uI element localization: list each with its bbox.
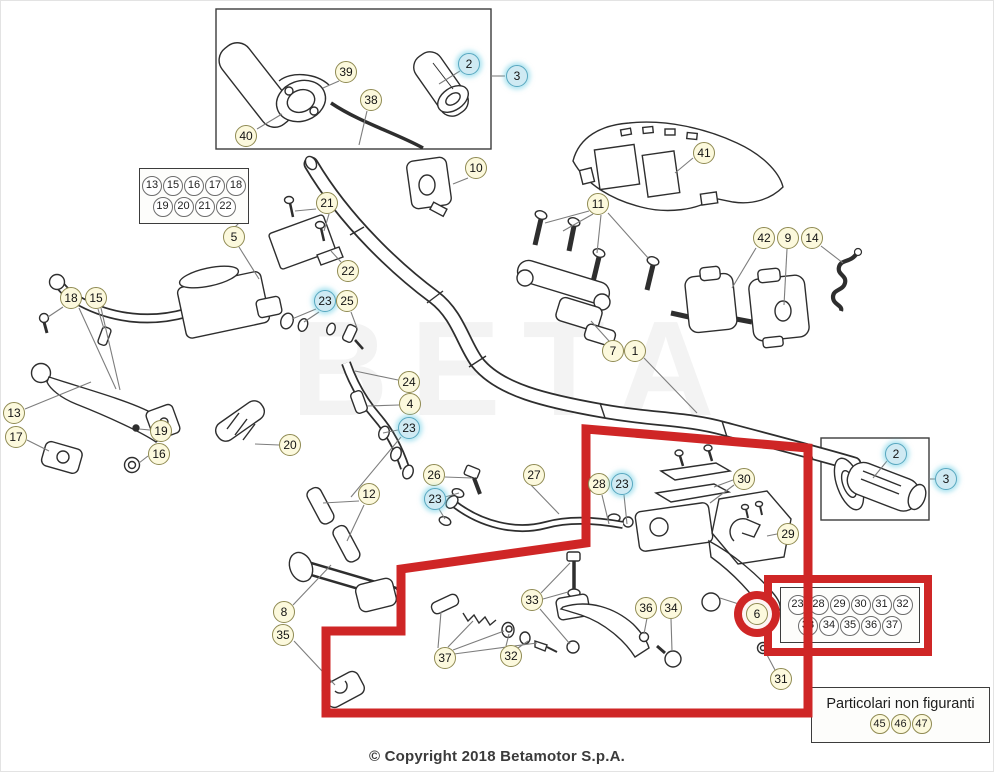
callout-23[interactable]: 23	[314, 290, 336, 312]
grid-callout-33[interactable]: 33	[798, 616, 818, 636]
grid-callout-37[interactable]: 37	[882, 616, 902, 636]
callout-3[interactable]: 3	[506, 65, 528, 87]
callout-28[interactable]: 28	[588, 473, 610, 495]
grid-callout-19[interactable]: 19	[153, 197, 173, 217]
callout-20[interactable]: 20	[279, 434, 301, 456]
callout-34[interactable]: 34	[660, 597, 682, 619]
grid-callout-34[interactable]: 34	[819, 616, 839, 636]
not-shown-callout-45[interactable]: 45	[870, 714, 890, 734]
not-shown-callout-46[interactable]: 46	[891, 714, 911, 734]
bar-clamp-drawing	[515, 209, 660, 347]
switch-housings-drawing	[671, 249, 862, 349]
grid-callout-15[interactable]: 15	[163, 176, 183, 196]
callout-12[interactable]: 12	[358, 483, 380, 505]
grid-callout-31[interactable]: 31	[872, 595, 892, 615]
right-grip-drawing	[828, 455, 929, 516]
callout-7[interactable]: 7	[602, 340, 624, 362]
callout-16[interactable]: 16	[148, 443, 170, 465]
grid-callout-35[interactable]: 35	[840, 616, 860, 636]
grid-callout-17[interactable]: 17	[205, 176, 225, 196]
callout-2[interactable]: 2	[458, 53, 480, 75]
callout-32[interactable]: 32	[500, 645, 522, 667]
grid-callout-22[interactable]: 22	[216, 197, 236, 217]
callout-23[interactable]: 23	[398, 417, 420, 439]
callout-9[interactable]: 9	[777, 227, 799, 249]
grid-callout-23[interactable]: 23	[788, 595, 808, 615]
callout-1[interactable]: 1	[624, 340, 646, 362]
grid-callout-20[interactable]: 20	[174, 197, 194, 217]
grid-callout-18[interactable]: 18	[226, 176, 246, 196]
callout-4[interactable]: 4	[399, 393, 421, 415]
bar-mounts-drawing	[285, 485, 398, 709]
callout-24[interactable]: 24	[398, 371, 420, 393]
grid-callout-16[interactable]: 16	[184, 176, 204, 196]
parts-diagram-page: BETA	[0, 0, 994, 772]
parts-not-shown-box: Particolari non figuranti 454647	[811, 687, 990, 743]
callout-29[interactable]: 29	[777, 523, 799, 545]
grid-callout-21[interactable]: 21	[195, 197, 215, 217]
callout-3[interactable]: 3	[935, 468, 957, 490]
callout-22[interactable]: 22	[337, 260, 359, 282]
callout-25[interactable]: 25	[336, 290, 358, 312]
callout-14[interactable]: 14	[801, 227, 823, 249]
callout-36[interactable]: 36	[635, 597, 657, 619]
callout-11[interactable]: 11	[587, 193, 609, 215]
callout-2[interactable]: 2	[885, 443, 907, 465]
callout-21[interactable]: 21	[316, 192, 338, 214]
not-shown-callout-47[interactable]: 47	[912, 714, 932, 734]
callout-38[interactable]: 38	[360, 89, 382, 111]
callout-26[interactable]: 26	[423, 464, 445, 486]
switch-drawing	[406, 156, 452, 216]
copyright-text: © Copyright 2018 Betamotor S.p.A.	[1, 748, 993, 765]
highlighted-parts-grid-box: 2328293031323334353637	[780, 587, 920, 643]
callout-39[interactable]: 39	[335, 61, 357, 83]
callout-17[interactable]: 17	[5, 426, 27, 448]
callout-23[interactable]: 23	[611, 473, 633, 495]
callout-8[interactable]: 8	[273, 601, 295, 623]
callout-35[interactable]: 35	[272, 624, 294, 646]
callout-30[interactable]: 30	[733, 468, 755, 490]
callout-41[interactable]: 41	[693, 142, 715, 164]
grid-callout-29[interactable]: 29	[830, 595, 850, 615]
adjuster-drawing	[212, 397, 268, 444]
callout-10[interactable]: 10	[465, 157, 487, 179]
callout-13[interactable]: 13	[3, 402, 25, 424]
callout-42[interactable]: 42	[753, 227, 775, 249]
exploded-diagram-art	[1, 1, 994, 772]
grid-callout-13[interactable]: 13	[142, 176, 162, 196]
callout-6[interactable]: 6	[746, 603, 768, 625]
grid-callout-32[interactable]: 32	[893, 595, 913, 615]
callout-18[interactable]: 18	[60, 287, 82, 309]
callout-23[interactable]: 23	[424, 488, 446, 510]
grid-callout-30[interactable]: 30	[851, 595, 871, 615]
grid-callout-36[interactable]: 36	[861, 616, 881, 636]
callout-15[interactable]: 15	[85, 287, 107, 309]
callout-5[interactable]: 5	[223, 226, 245, 248]
callout-27[interactable]: 27	[523, 464, 545, 486]
callout-40[interactable]: 40	[235, 125, 257, 147]
callout-33[interactable]: 33	[521, 589, 543, 611]
grid-callout-28[interactable]: 28	[809, 595, 829, 615]
callout-19[interactable]: 19	[150, 420, 172, 442]
callout-37[interactable]: 37	[434, 647, 456, 669]
callout-31[interactable]: 31	[770, 668, 792, 690]
parts-not-shown-label: Particolari non figuranti	[826, 696, 974, 712]
legend-grid-box: 131516171819202122	[139, 168, 249, 224]
